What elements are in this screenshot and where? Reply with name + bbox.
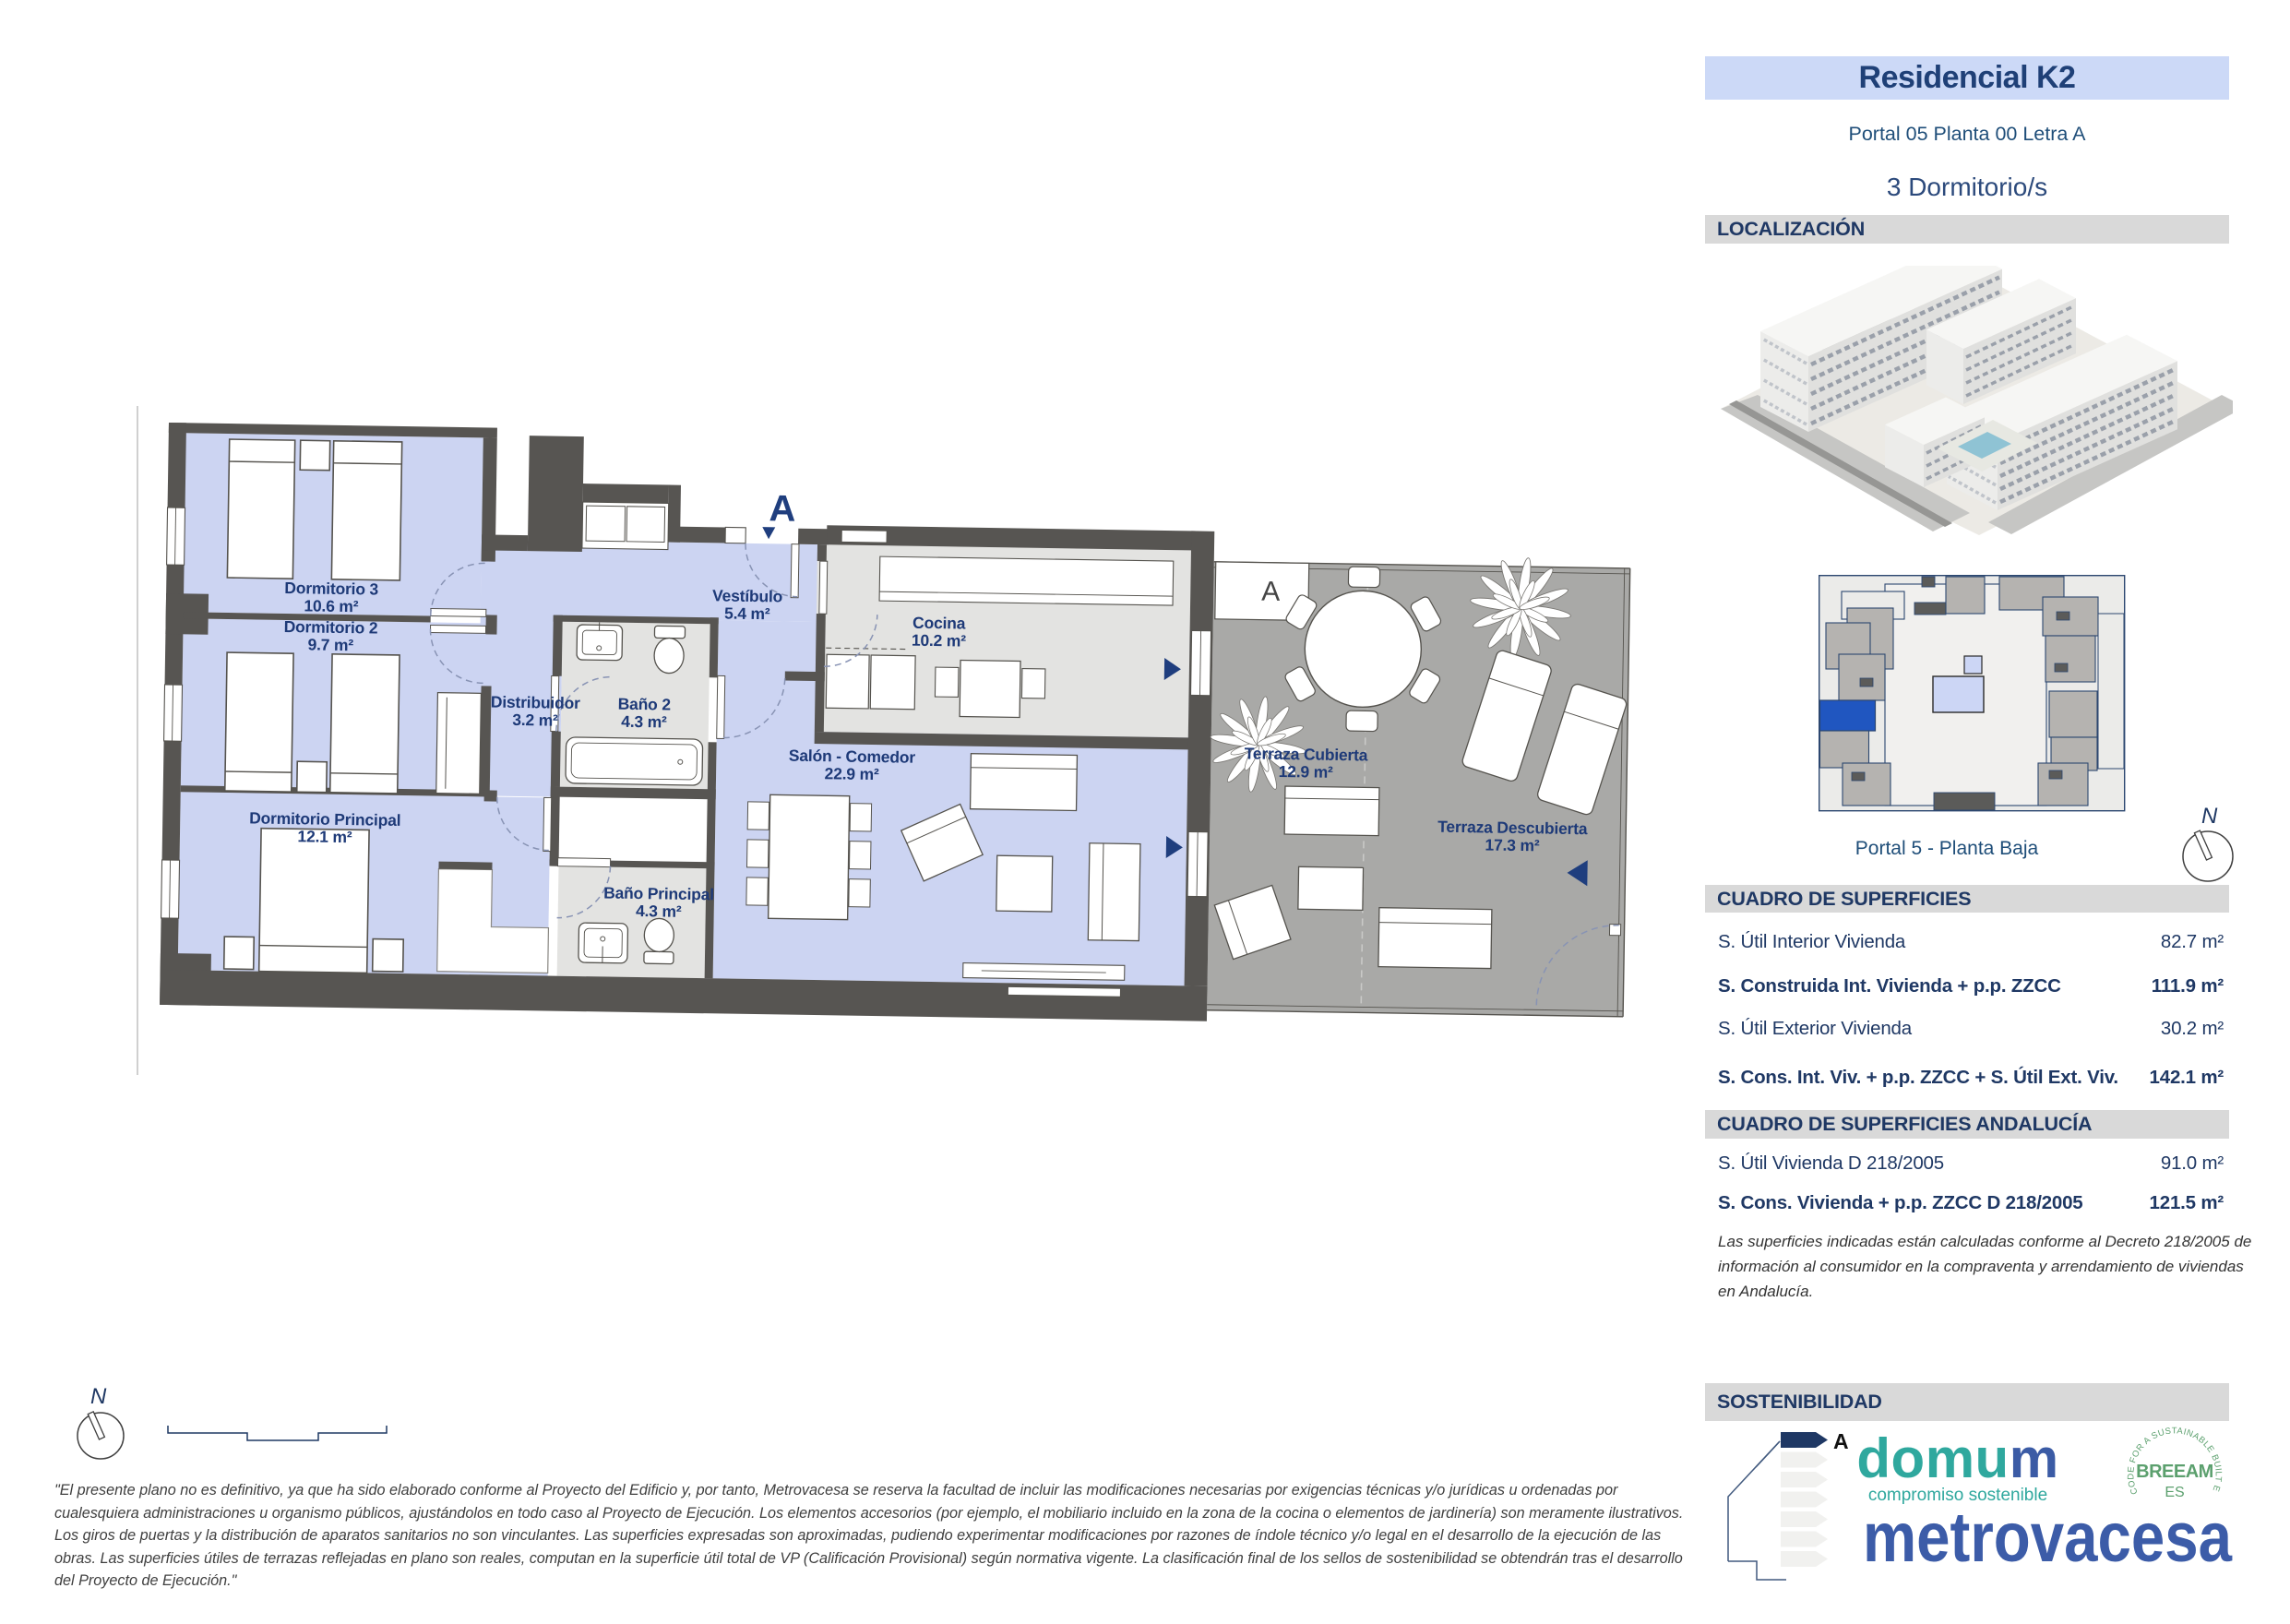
svg-text:Terraza Cubierta: Terraza Cubierta xyxy=(1245,744,1368,764)
svg-text:Dormitorio 3: Dormitorio 3 xyxy=(284,579,378,599)
svg-text:5.4 m²: 5.4 m² xyxy=(724,603,770,623)
svg-text:10.6 m²: 10.6 m² xyxy=(304,596,359,615)
svg-text:Salón - Comedor: Salón - Comedor xyxy=(789,746,916,767)
svg-text:N: N xyxy=(2201,804,2218,829)
svg-text:Dormitorio 2: Dormitorio 2 xyxy=(284,617,378,638)
svg-text:Baño Principal: Baño Principal xyxy=(603,883,714,903)
svg-text:A: A xyxy=(1261,577,1281,607)
svg-text:Distribuidor: Distribuidor xyxy=(491,693,580,713)
svg-text:9.7 m²: 9.7 m² xyxy=(307,635,353,654)
svg-text:Baño 2: Baño 2 xyxy=(618,695,672,714)
svg-text:Cocina: Cocina xyxy=(912,614,966,633)
svg-text:Dormitorio Principal: Dormitorio Principal xyxy=(249,808,401,830)
svg-text:12.1 m²: 12.1 m² xyxy=(297,827,352,846)
svg-text:N: N xyxy=(90,1384,107,1409)
svg-text:4.3 m²: 4.3 m² xyxy=(636,902,682,921)
svg-text:A: A xyxy=(769,488,795,529)
svg-text:12.9 m²: 12.9 m² xyxy=(1279,762,1334,782)
svg-text:10.2 m²: 10.2 m² xyxy=(912,631,967,651)
svg-text:3.2 m²: 3.2 m² xyxy=(512,710,558,730)
svg-text:Terraza Descubierta: Terraza Descubierta xyxy=(1437,818,1588,839)
svg-text:17.3 m²: 17.3 m² xyxy=(1485,835,1540,854)
svg-text:22.9 m²: 22.9 m² xyxy=(824,764,879,783)
svg-text:4.3 m²: 4.3 m² xyxy=(621,712,667,732)
svg-text:A: A xyxy=(1833,1429,1849,1453)
svg-text:Vestíbulo: Vestíbulo xyxy=(712,586,782,605)
